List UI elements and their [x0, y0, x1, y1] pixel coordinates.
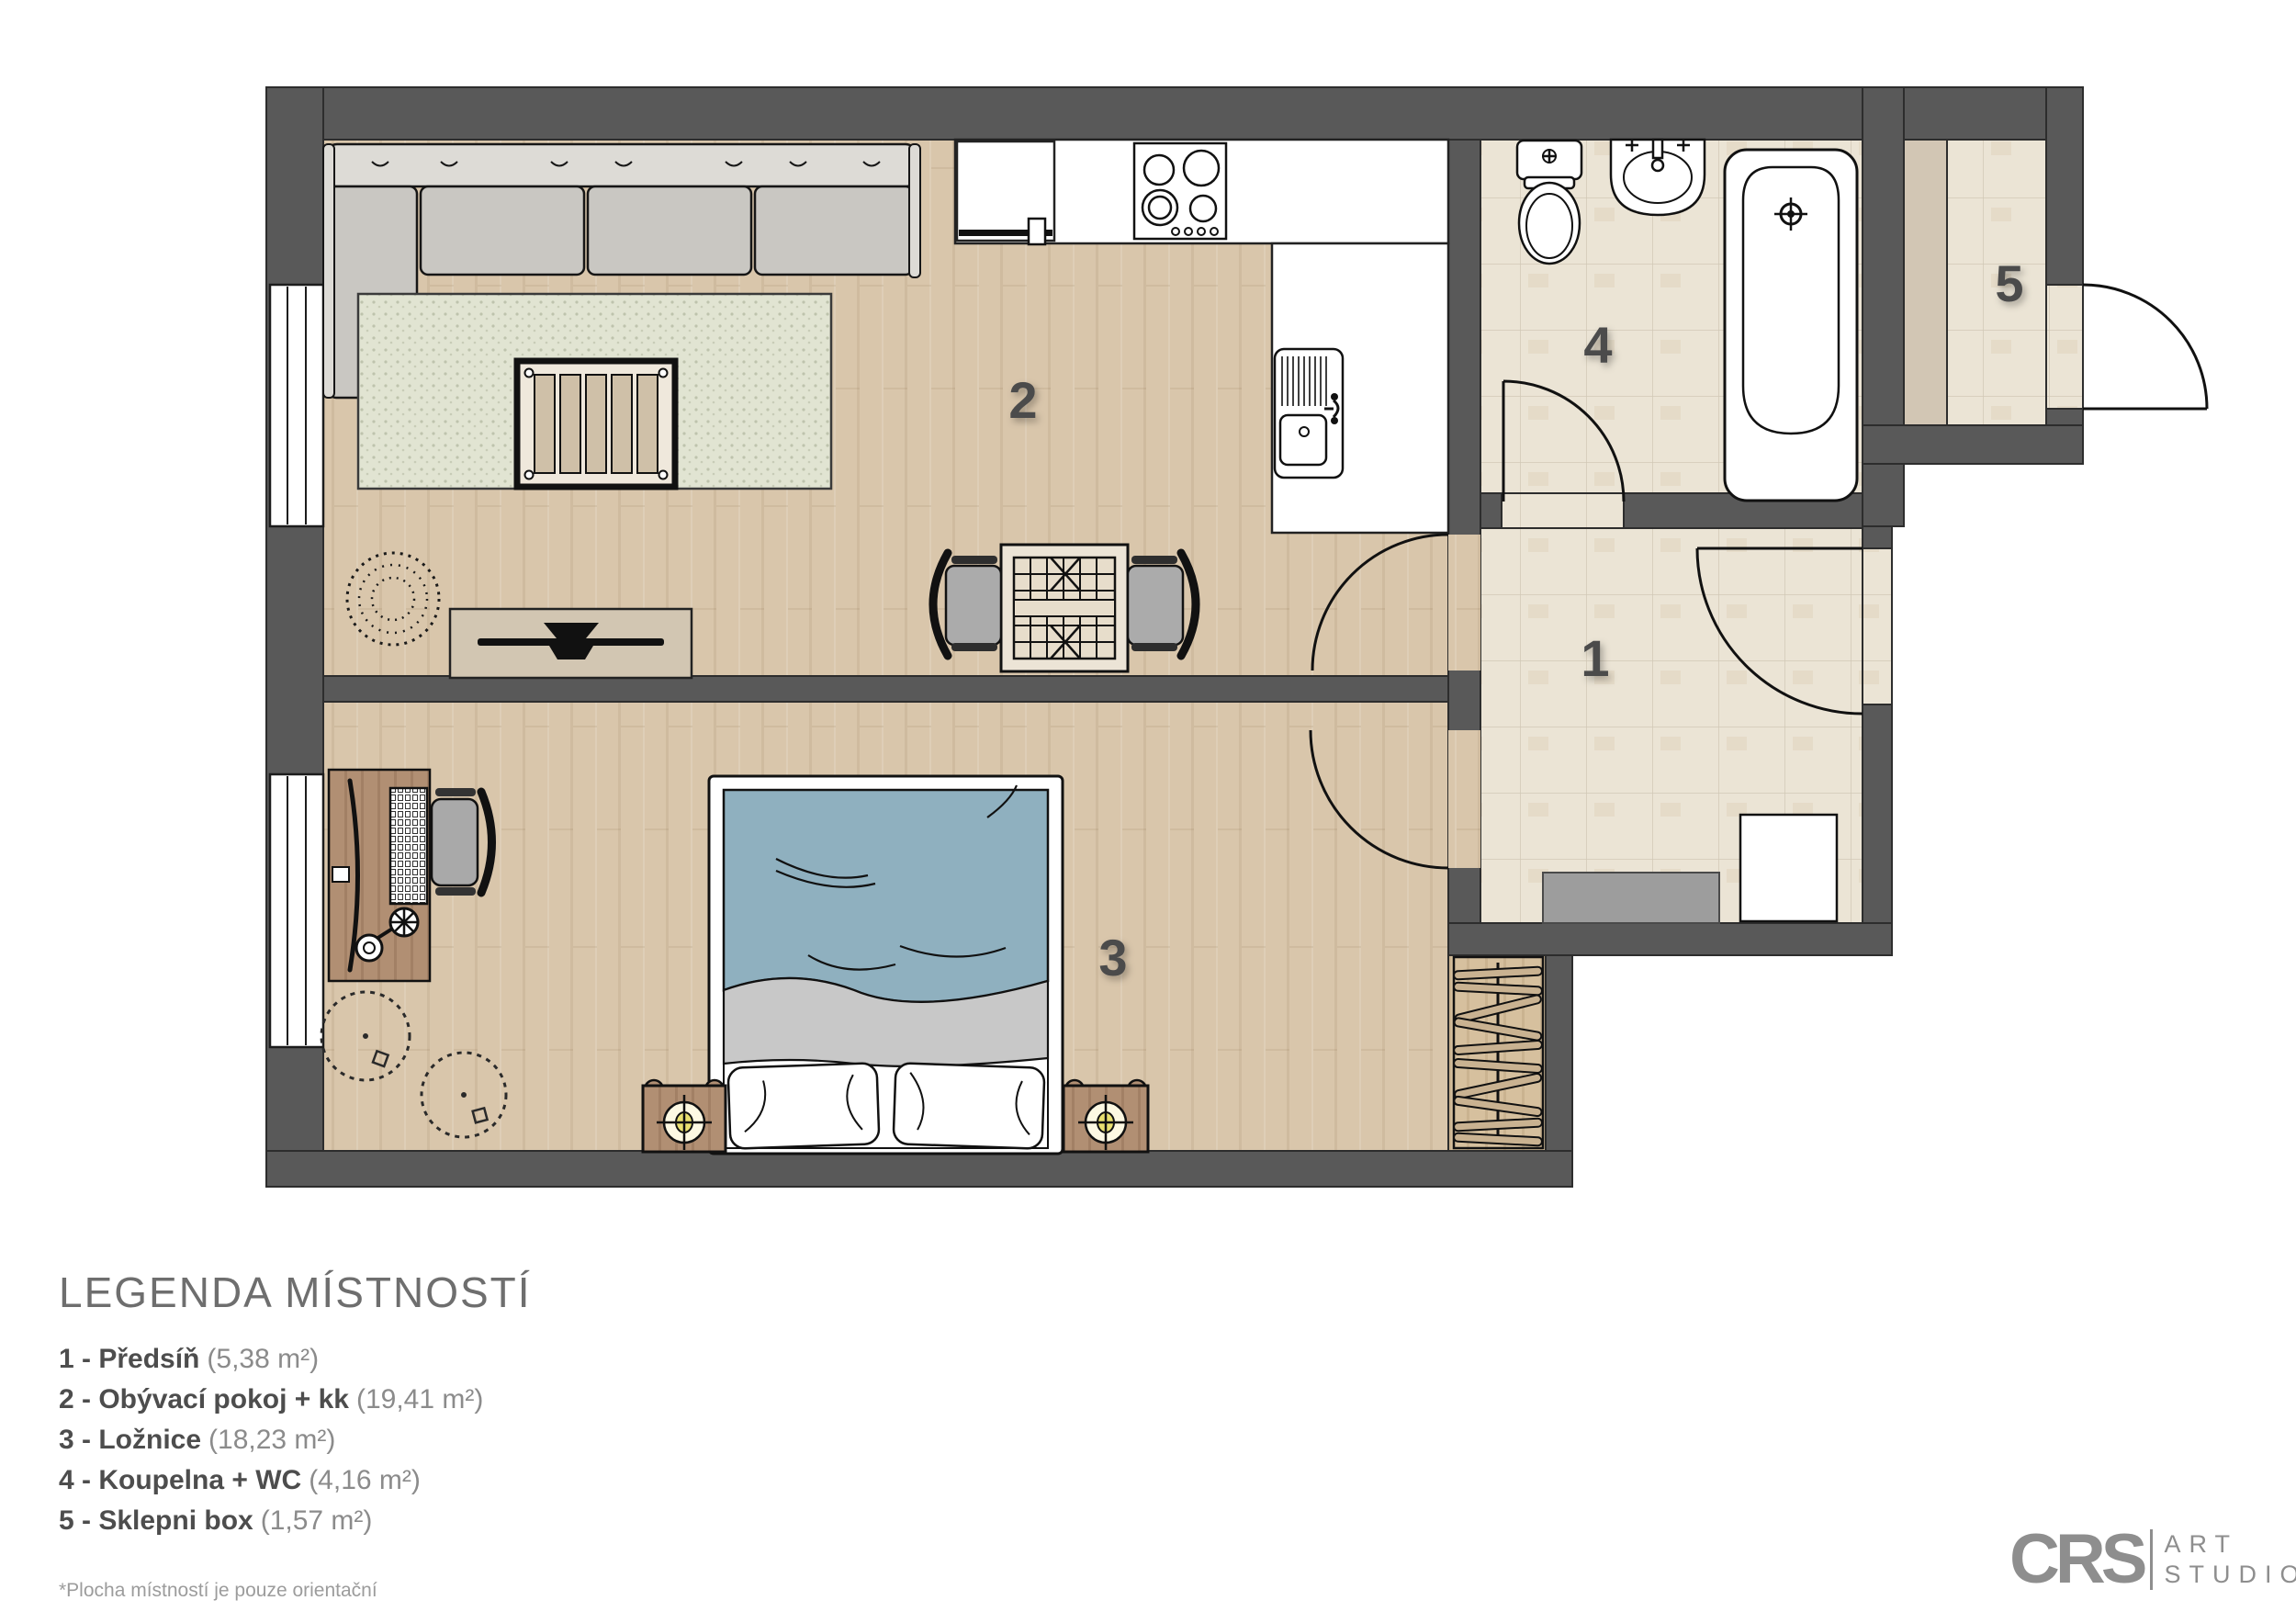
- room-number-2: 2: [1008, 371, 1037, 429]
- wall-room-divider: [323, 676, 1448, 702]
- legend-item-2: 2 - Obývací pokoj + kk(19,41 m²): [59, 1380, 532, 1420]
- bathroom-sink: [1611, 139, 1705, 215]
- pillow-right: [894, 1063, 1045, 1149]
- nightstand-left: [643, 1080, 726, 1152]
- room-number-3: 3: [1098, 929, 1127, 986]
- room-number-5: 5: [1995, 254, 2023, 312]
- tv-stand: [450, 609, 692, 678]
- toilet: [1517, 141, 1581, 264]
- keyboard-icon: [390, 788, 427, 904]
- legend-item-5: 5 - Sklepni box(1,57 m²): [59, 1501, 532, 1541]
- dining-table: [1001, 545, 1128, 671]
- wardrobe: [1454, 957, 1543, 1148]
- room-number-4: 4: [1583, 316, 1612, 374]
- legend-item-area: (4,16 m²): [309, 1465, 421, 1495]
- cellar-shelf: [1904, 140, 1947, 425]
- cellar-door-threshold: [2046, 285, 2083, 409]
- pillow-left: [728, 1063, 880, 1149]
- legend-item-label: 3 - Ložnice: [59, 1425, 201, 1455]
- legend-item-area: (19,41 m²): [356, 1384, 483, 1414]
- fridge: [957, 141, 1054, 244]
- floor-plan-page: 2 4 5 1 3 LEGENDA MÍSTNOSTÍ 1 - Předsíň(…: [0, 0, 2296, 1623]
- logo-word-studio: STUDIO: [2164, 1560, 2296, 1590]
- legend-item-area: (1,57 m²): [261, 1505, 373, 1536]
- legend-items: 1 - Předsíň(5,38 m²) 2 - Obývací pokoj +…: [59, 1339, 532, 1541]
- wall-cellar-bottom: [1863, 425, 2083, 464]
- wall-top: [266, 87, 2083, 140]
- legend-item-label: 1 - Předsíň: [59, 1344, 199, 1374]
- legend-footnote: *Plocha místností je pouze orientační: [59, 1580, 532, 1602]
- desk: [329, 770, 430, 981]
- legend-item-label: 2 - Obývací pokoj + kk: [59, 1384, 349, 1414]
- logo-word-art: ART: [2164, 1529, 2296, 1560]
- kitchen-sink: [1275, 349, 1343, 478]
- legend-item-area: (5,38 m²): [207, 1344, 319, 1374]
- living-room-window: [270, 285, 323, 526]
- legend-title: LEGENDA MÍSTNOSTÍ: [59, 1268, 532, 1317]
- logo-abbr: CRS: [2009, 1525, 2143, 1595]
- coffee-table: [517, 361, 675, 487]
- hall-cabinet: [1740, 815, 1837, 921]
- bathtub: [1725, 150, 1857, 501]
- studio-logo: CRS ART STUDIO: [2009, 1525, 2296, 1595]
- doormat: [1543, 873, 1719, 923]
- cooktop: [1134, 143, 1226, 239]
- legend-item-label: 4 - Koupelna + WC: [59, 1465, 301, 1495]
- bathroom-door-threshold: [1502, 493, 1624, 528]
- legend-item-label: 5 - Sklepni box: [59, 1505, 253, 1536]
- legend-item-4: 4 - Koupelna + WC(4,16 m²): [59, 1460, 532, 1501]
- legend-item-area: (18,23 m²): [208, 1425, 335, 1455]
- living-door-opening: [1448, 535, 1480, 671]
- wall-bottom: [266, 1151, 1572, 1187]
- blanket: [724, 790, 1048, 1002]
- bedroom-window: [270, 774, 323, 1047]
- cellar-door-arc: [2083, 285, 2207, 409]
- logo-divider: [2150, 1529, 2153, 1590]
- bed: [709, 776, 1063, 1154]
- room-number-1: 1: [1581, 629, 1609, 687]
- entry-door-threshold: [1863, 548, 1892, 704]
- legend-item-3: 3 - Ložnice(18,23 m²): [59, 1420, 532, 1460]
- nightstand-right: [1064, 1080, 1148, 1152]
- wall-hall-bottom: [1448, 923, 1892, 955]
- bedroom-door-opening: [1448, 730, 1480, 868]
- logo-words: ART STUDIO: [2164, 1529, 2296, 1590]
- wall-nook-right: [1546, 955, 1572, 1151]
- legend: LEGENDA MÍSTNOSTÍ 1 - Předsíň(5,38 m²) 2…: [59, 1268, 532, 1602]
- legend-item-1: 1 - Předsíň(5,38 m²): [59, 1339, 532, 1380]
- floor-plan-drawing: 2 4 5 1 3: [0, 0, 2296, 1240]
